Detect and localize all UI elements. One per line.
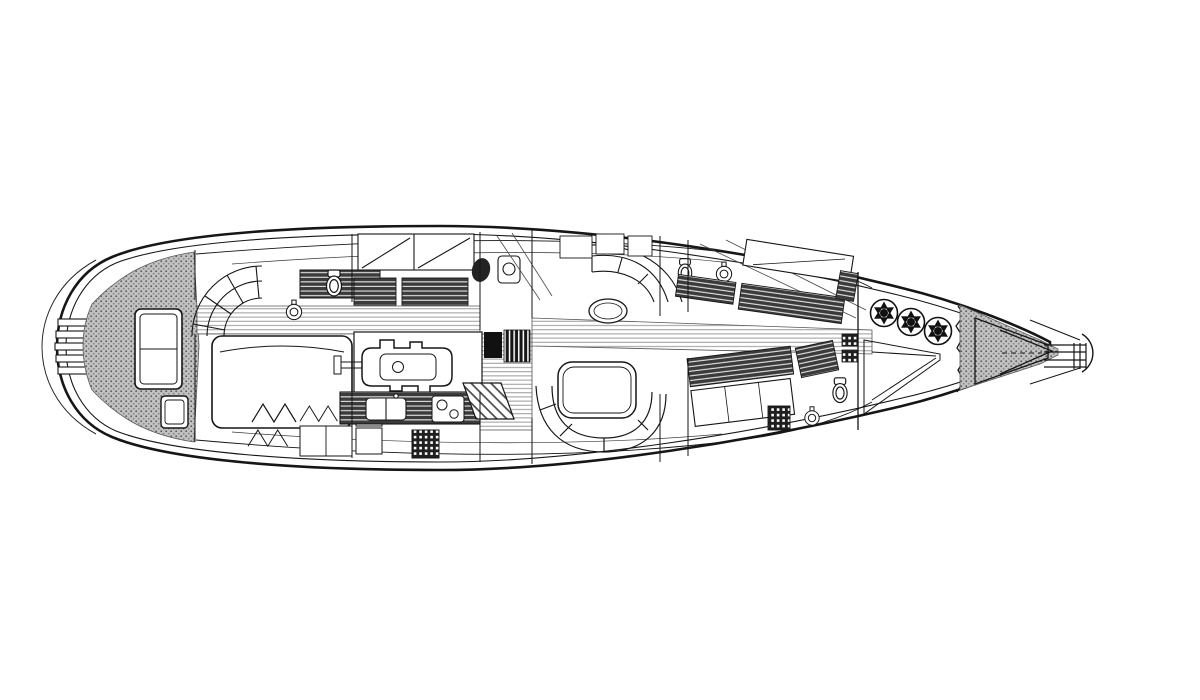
- bow-deck: [960, 305, 1058, 390]
- swim-step: [58, 319, 88, 326]
- bunk-mattress: [402, 278, 468, 305]
- engine: [362, 340, 452, 393]
- stove: [432, 396, 464, 422]
- vent-grille: [768, 406, 790, 430]
- mast-step: [484, 332, 502, 358]
- deck-boxes: [560, 234, 652, 258]
- furling-drum: [925, 318, 952, 345]
- aft-deck-hatch-large: [135, 309, 182, 389]
- swim-step: [58, 367, 88, 374]
- furling-drum: [898, 309, 925, 336]
- furling-drum: [871, 300, 898, 327]
- aft-deck-hatch-small: [161, 396, 188, 428]
- double-berth: [212, 336, 352, 428]
- shower-tray: [498, 256, 520, 283]
- toilet: [833, 378, 847, 403]
- bottle-rack: [412, 430, 439, 458]
- winch-grille: [504, 330, 530, 362]
- sole-aft: [197, 306, 480, 334]
- engine-room: [334, 332, 482, 396]
- pulpit-tip-arc: [1082, 334, 1093, 372]
- screenshot-root: Sailing yacht interior and deck arrangem…: [0, 0, 1200, 700]
- bunk-mattress: [354, 278, 396, 305]
- yacht-plan-canvas: Sailing yacht interior and deck arrangem…: [0, 0, 1200, 700]
- saloon-table: [558, 362, 636, 418]
- bunk-berths: [358, 234, 474, 270]
- cocktail-table: [589, 299, 627, 323]
- toilet: [327, 270, 342, 296]
- sink: [366, 394, 406, 420]
